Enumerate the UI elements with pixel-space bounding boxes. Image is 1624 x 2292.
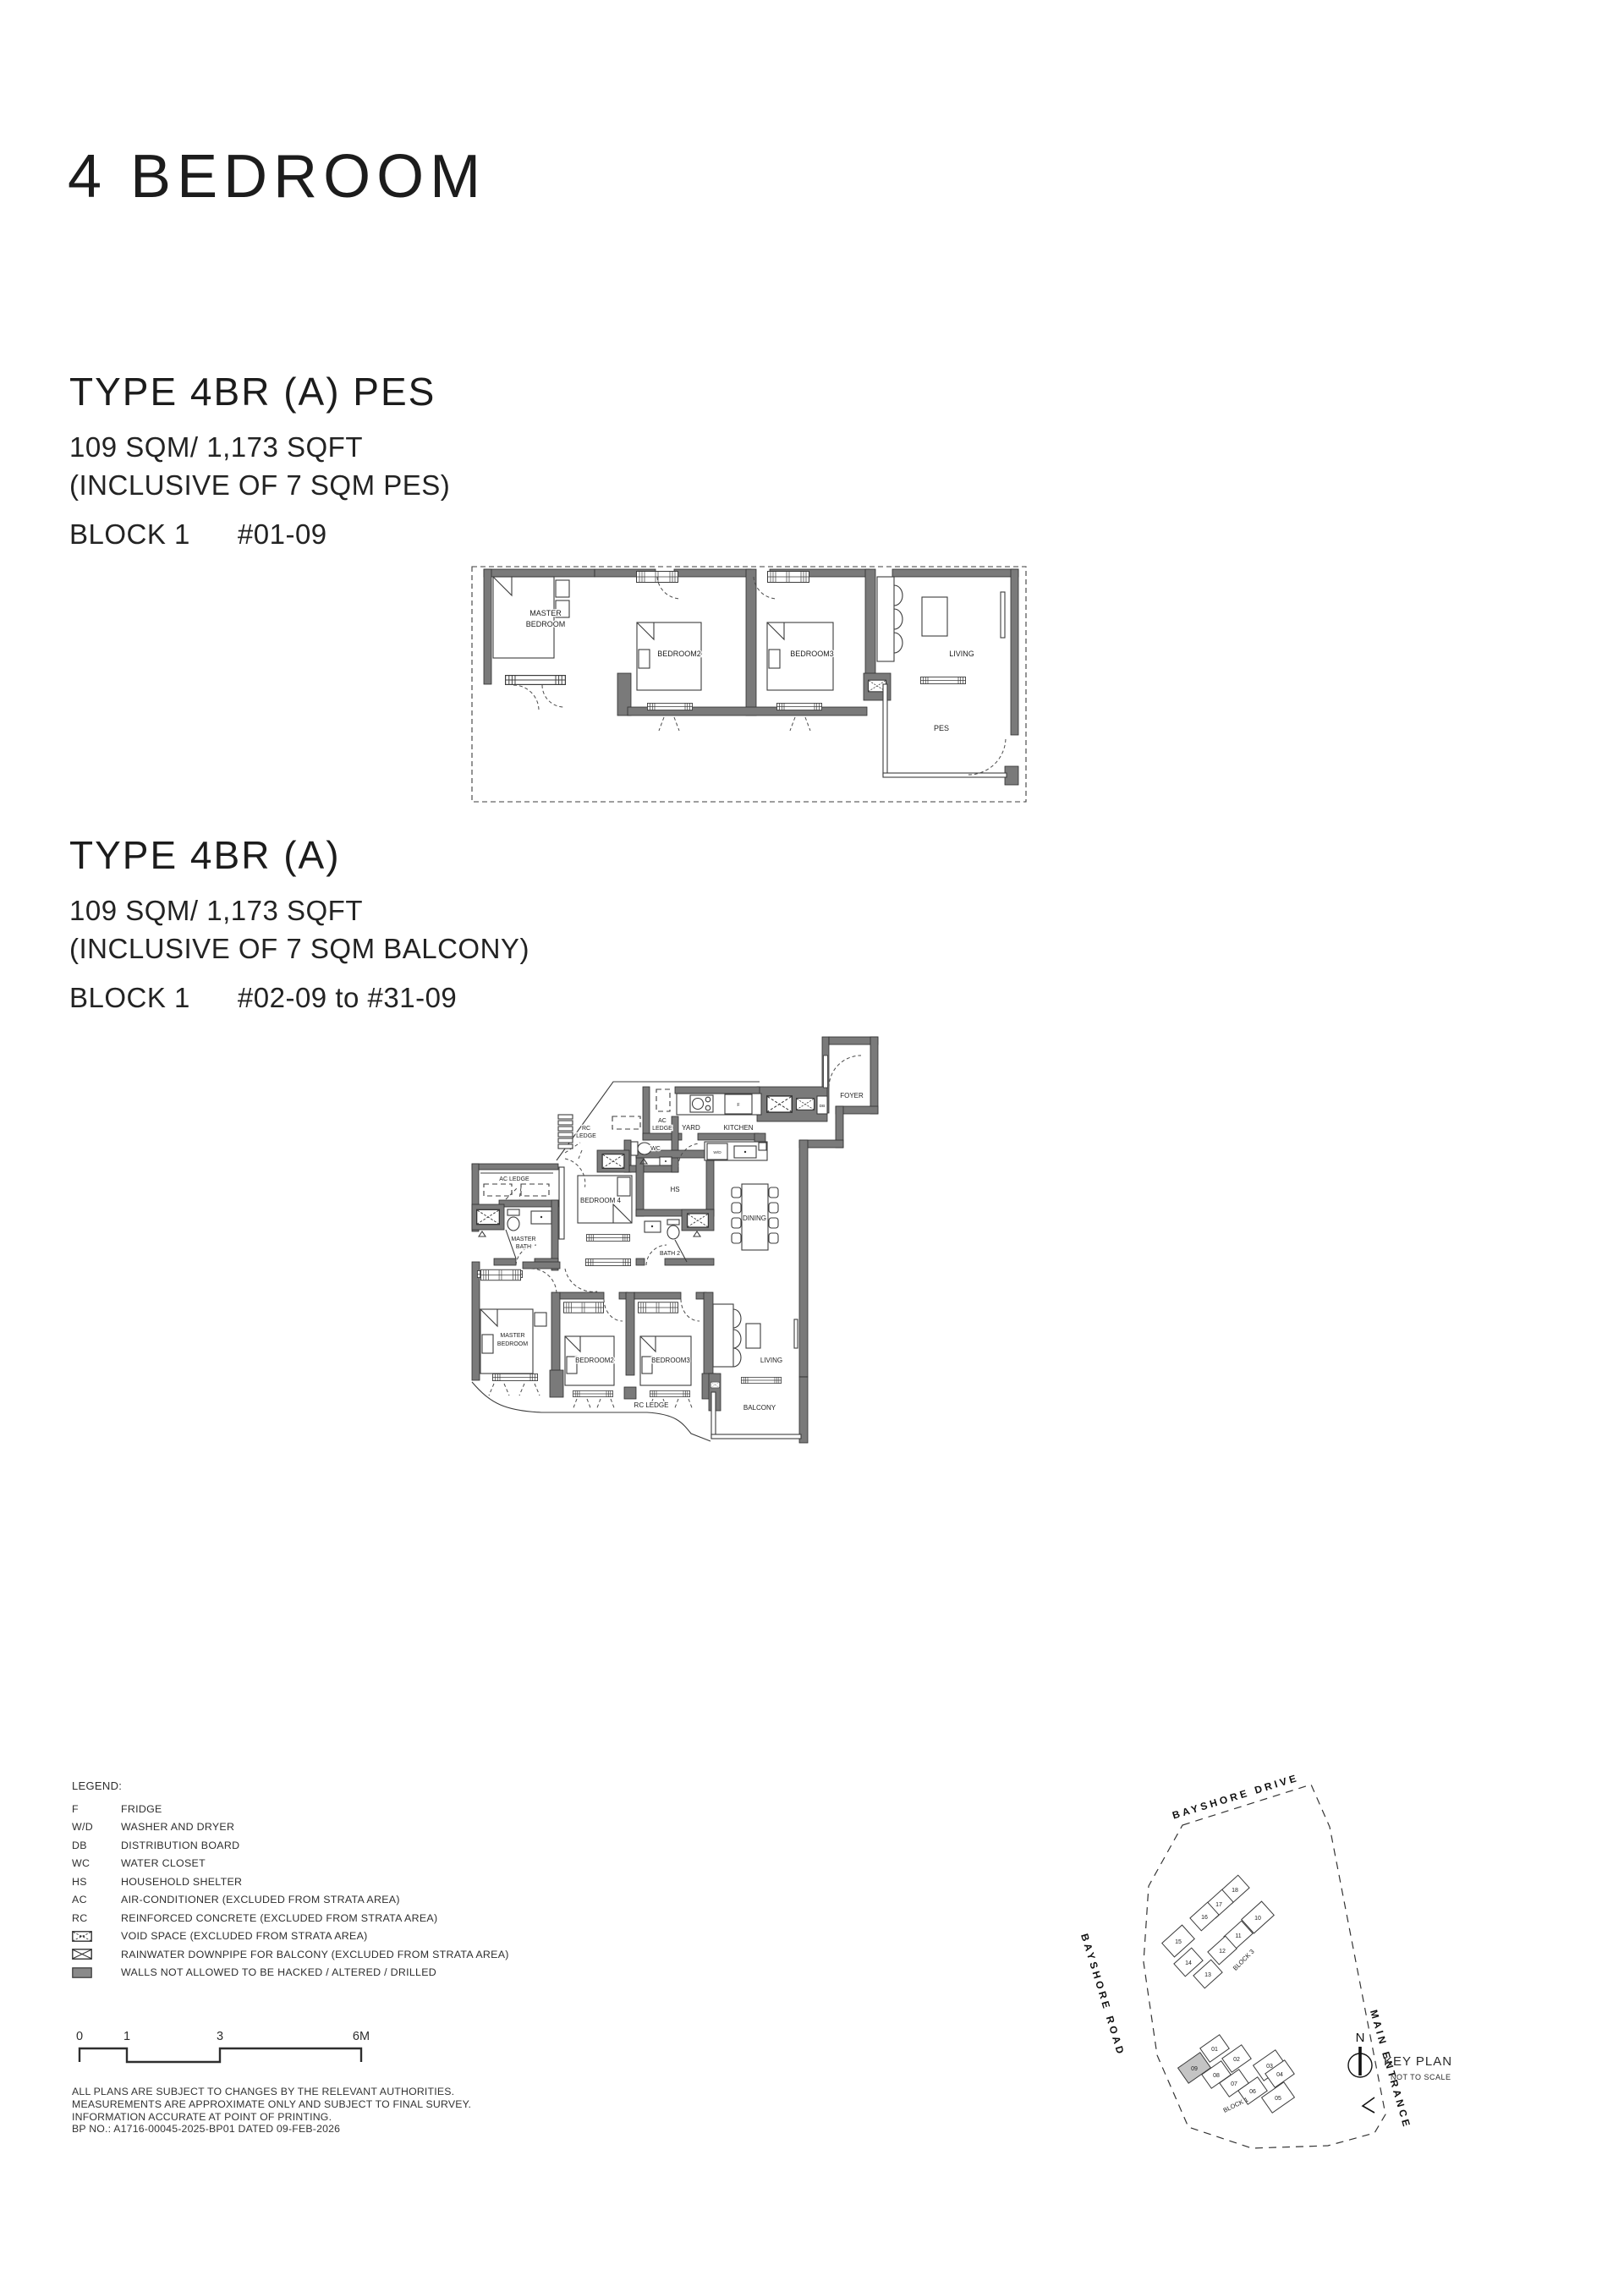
legend-title: LEGEND: [72, 1779, 509, 1792]
label-bedroom3: BEDROOM3 [790, 650, 834, 658]
label-hs: HS [670, 1186, 679, 1193]
footnote-line: MEASUREMENTS ARE APPROXIMATE ONLY AND SU… [72, 2098, 471, 2111]
legend-row: VOID SPACE (EXCLUDED FROM STRATA AREA) [72, 1927, 509, 1946]
room-kitchen: F YARD KITCHEN [677, 1094, 761, 1132]
svg-text:6M: 6M [353, 2030, 370, 2043]
svg-text:12: 12 [1219, 1949, 1226, 1955]
inclusive-text: (INCLUSIVE OF 7 SQM BALCONY) [69, 929, 529, 968]
label-master-bedroom: MASTER [500, 1333, 524, 1339]
legend: LEGEND: FFRIDGE W/DWASHER AND DRYER DBDI… [72, 1779, 509, 1982]
room-pes: PES [883, 677, 1007, 777]
svg-text:14: 14 [1185, 1960, 1192, 1966]
room-master-bath: MASTER BATH [477, 1209, 551, 1265]
rainwater-downpipe-icon [72, 1949, 121, 1960]
type-4br-a-pes-info: TYPE 4BR (A) PES 109 SQM/ 1,173 SQFT (IN… [69, 369, 450, 553]
svg-text:01: 01 [1211, 2047, 1218, 2053]
north-arrow-icon: N [1348, 2031, 1372, 2077]
room-master-bedroom: MASTER BEDROOM [480, 1269, 546, 1395]
svg-text:02: 02 [1233, 2057, 1240, 2063]
svg-text:N: N [1356, 2031, 1365, 2045]
svg-text:BATH: BATH [516, 1244, 531, 1250]
block1-label: BLOCK 1 [1222, 2096, 1249, 2114]
footnote-line: INFORMATION ACCURATE AT POINT OF PRINTIN… [72, 2111, 471, 2124]
room-bedroom3: BEDROOM3 [754, 572, 834, 691]
svg-text:17: 17 [1215, 1902, 1222, 1908]
label-living: LIVING [949, 650, 974, 658]
room-dining: DINING [732, 1184, 778, 1250]
block-label: BLOCK 1 [69, 518, 190, 550]
svg-text:3: 3 [217, 2030, 223, 2043]
label-wc: WC [650, 1146, 661, 1152]
key-plan-subtitle: NOT TO SCALE [1391, 2073, 1451, 2081]
label-master-bath: MASTER [511, 1236, 535, 1242]
svg-text:16: 16 [1201, 1915, 1208, 1921]
room-bedroom2: BEDROOM2 [563, 1299, 623, 1410]
legend-row: RAINWATER DOWNPIPE FOR BALCONY (EXCLUDED… [72, 1945, 509, 1964]
legend-row: FFRIDGE [72, 1800, 509, 1818]
svg-text:07: 07 [1231, 2081, 1237, 2087]
type-4br-a-info: TYPE 4BR (A) 109 SQM/ 1,173 SQFT (INCLUS… [69, 832, 529, 1017]
floor-plan-4br-a: DB FOYER F YARD KITCHEN AC LEDGE [457, 1015, 1176, 1734]
footnote-line: BP NO.: A1716-00045-2025-BP01 DATED 09-F… [72, 2123, 471, 2136]
room-bedroom4: BEDROOM 4 [559, 1159, 632, 1266]
key-plan-title: KEY PLAN [1384, 2054, 1452, 2069]
label-balcony: BALCONY [743, 1404, 776, 1412]
footnote-line: ALL PLANS ARE SUBJECT TO CHANGES BY THE … [72, 2086, 471, 2098]
room-bedroom2: BEDROOM2 [637, 572, 702, 691]
label-rc-ledge: RC [582, 1126, 590, 1132]
label-bedroom3: BEDROOM3 [651, 1357, 690, 1364]
svg-text:LEDGE: LEDGE [652, 1126, 672, 1132]
block-units-line: BLOCK 1#02-09 to #31-09 [69, 979, 529, 1017]
label-ac-ledge-left: AC LEDGE [499, 1176, 529, 1182]
label-kitchen: KITCHEN [723, 1124, 753, 1132]
block1-cluster: 01 02 03 04 05 06 07 08 09 BLOCK 1 [1178, 2035, 1295, 2114]
svg-text:10: 10 [1254, 1916, 1261, 1922]
room-balcony: BALCONY [710, 1377, 801, 1439]
label-rc-ledge-bottom: RC LEDGE [634, 1401, 669, 1409]
block-label: BLOCK 1 [69, 982, 190, 1013]
svg-text:05: 05 [1275, 2096, 1281, 2102]
void-space-icon [72, 1931, 121, 1942]
svg-text:BEDROOM: BEDROOM [497, 1341, 528, 1347]
unit-range: #01-09 [238, 515, 327, 553]
svg-text:06: 06 [1249, 2089, 1256, 2095]
svg-text:BEDROOM: BEDROOM [526, 620, 566, 628]
main-entrance-arrow [1363, 2097, 1374, 2113]
label-foyer: FOYER [840, 1092, 864, 1099]
svg-text:15: 15 [1175, 1939, 1182, 1945]
svg-text:03: 03 [1266, 2064, 1273, 2070]
street-bayshore-drive: BAYSHORE DRIVE [1171, 1772, 1300, 1822]
svg-text:0: 0 [76, 2030, 83, 2043]
svg-text:04: 04 [1276, 2072, 1283, 2078]
area-text: 109 SQM/ 1,173 SQFT [69, 891, 529, 929]
legend-row: ACAIR-CONDITIONER (EXCLUDED FROM STRATA … [72, 1891, 509, 1910]
block-units-line: BLOCK 1#01-09 [69, 515, 450, 553]
floorplan-page: 4 BEDROOM TYPE 4BR (A) PES 109 SQM/ 1,17… [0, 0, 1624, 2292]
page-title: 4 BEDROOM [68, 142, 486, 211]
label-dining: DINING [743, 1215, 766, 1222]
svg-text:08: 08 [1213, 2073, 1220, 2079]
label-bath2: BATH 2 [660, 1251, 680, 1257]
svg-text:18: 18 [1232, 1888, 1238, 1894]
svg-text:13: 13 [1204, 1972, 1211, 1978]
svg-text:11: 11 [1235, 1933, 1241, 1939]
block3-label: BLOCK 3 [1232, 1948, 1256, 1972]
floor-plan-4br-a-pes: MASTER BEDROOM BEDROOM2 BEDROOM3 [461, 548, 1036, 812]
type-heading: TYPE 4BR (A) PES [69, 369, 450, 414]
type-heading: TYPE 4BR (A) [69, 832, 529, 878]
inclusive-text: (INCLUSIVE OF 7 SQM PES) [69, 466, 450, 504]
hatched-wall-icon [72, 1967, 121, 1978]
svg-text:09: 09 [1191, 2066, 1198, 2072]
unit-range: #02-09 to #31-09 [238, 979, 457, 1017]
label-ac-ledge-top: AC [658, 1118, 667, 1124]
label-washer-dryer: W/D [713, 1150, 721, 1155]
legend-row: HSHOUSEHOLD SHELTER [72, 1873, 509, 1891]
room-bedroom3: BEDROOM3 [638, 1299, 700, 1410]
legend-row: DBDISTRIBUTION BOARD [72, 1836, 509, 1855]
label-living: LIVING [760, 1357, 782, 1364]
label-yard: YARD [682, 1124, 700, 1132]
svg-text:1: 1 [123, 2030, 130, 2043]
legend-row: WCWATER CLOSET [72, 1855, 509, 1873]
svg-text:LEDGE: LEDGE [576, 1133, 596, 1139]
key-plan: BAYSHORE DRIVE BAYSHORE ROAD MAIN ENTRAN… [1049, 1742, 1624, 2250]
label-bedroom2: BEDROOM2 [657, 650, 701, 658]
room-living: LIVING [713, 1304, 798, 1367]
ac-ledge-top: AC LEDGE [652, 1089, 672, 1132]
room-master-bedroom: MASTER BEDROOM [493, 577, 569, 710]
footnotes: ALL PLANS ARE SUBJECT TO CHANGES BY THE … [72, 2086, 471, 2136]
ac-ledge-left: AC LEDGE [480, 1173, 553, 1199]
legend-row: W/DWASHER AND DRYER [72, 1818, 509, 1837]
legend-row: RCREINFORCED CONCRETE (EXCLUDED FROM STR… [72, 1909, 509, 1927]
label-db: DB [820, 1104, 826, 1109]
label-bedroom4: BEDROOM 4 [580, 1197, 622, 1204]
label-bedroom2: BEDROOM2 [575, 1357, 614, 1364]
area-text: 109 SQM/ 1,173 SQFT [69, 428, 450, 466]
scale-bar: 0 1 3 6M [69, 2026, 382, 2075]
room-foyer: FOYER [824, 1056, 864, 1099]
label-pes: PES [934, 724, 949, 732]
block3-cluster: 18 17 16 10 11 15 12 14 13 BLOCK 3 [1162, 1875, 1275, 1988]
label-master-bedroom: MASTER [529, 609, 562, 617]
legend-row: WALLS NOT ALLOWED TO BE HACKED / ALTERED… [72, 1964, 509, 1982]
street-bayshore-road: BAYSHORE ROAD [1078, 1933, 1127, 2059]
